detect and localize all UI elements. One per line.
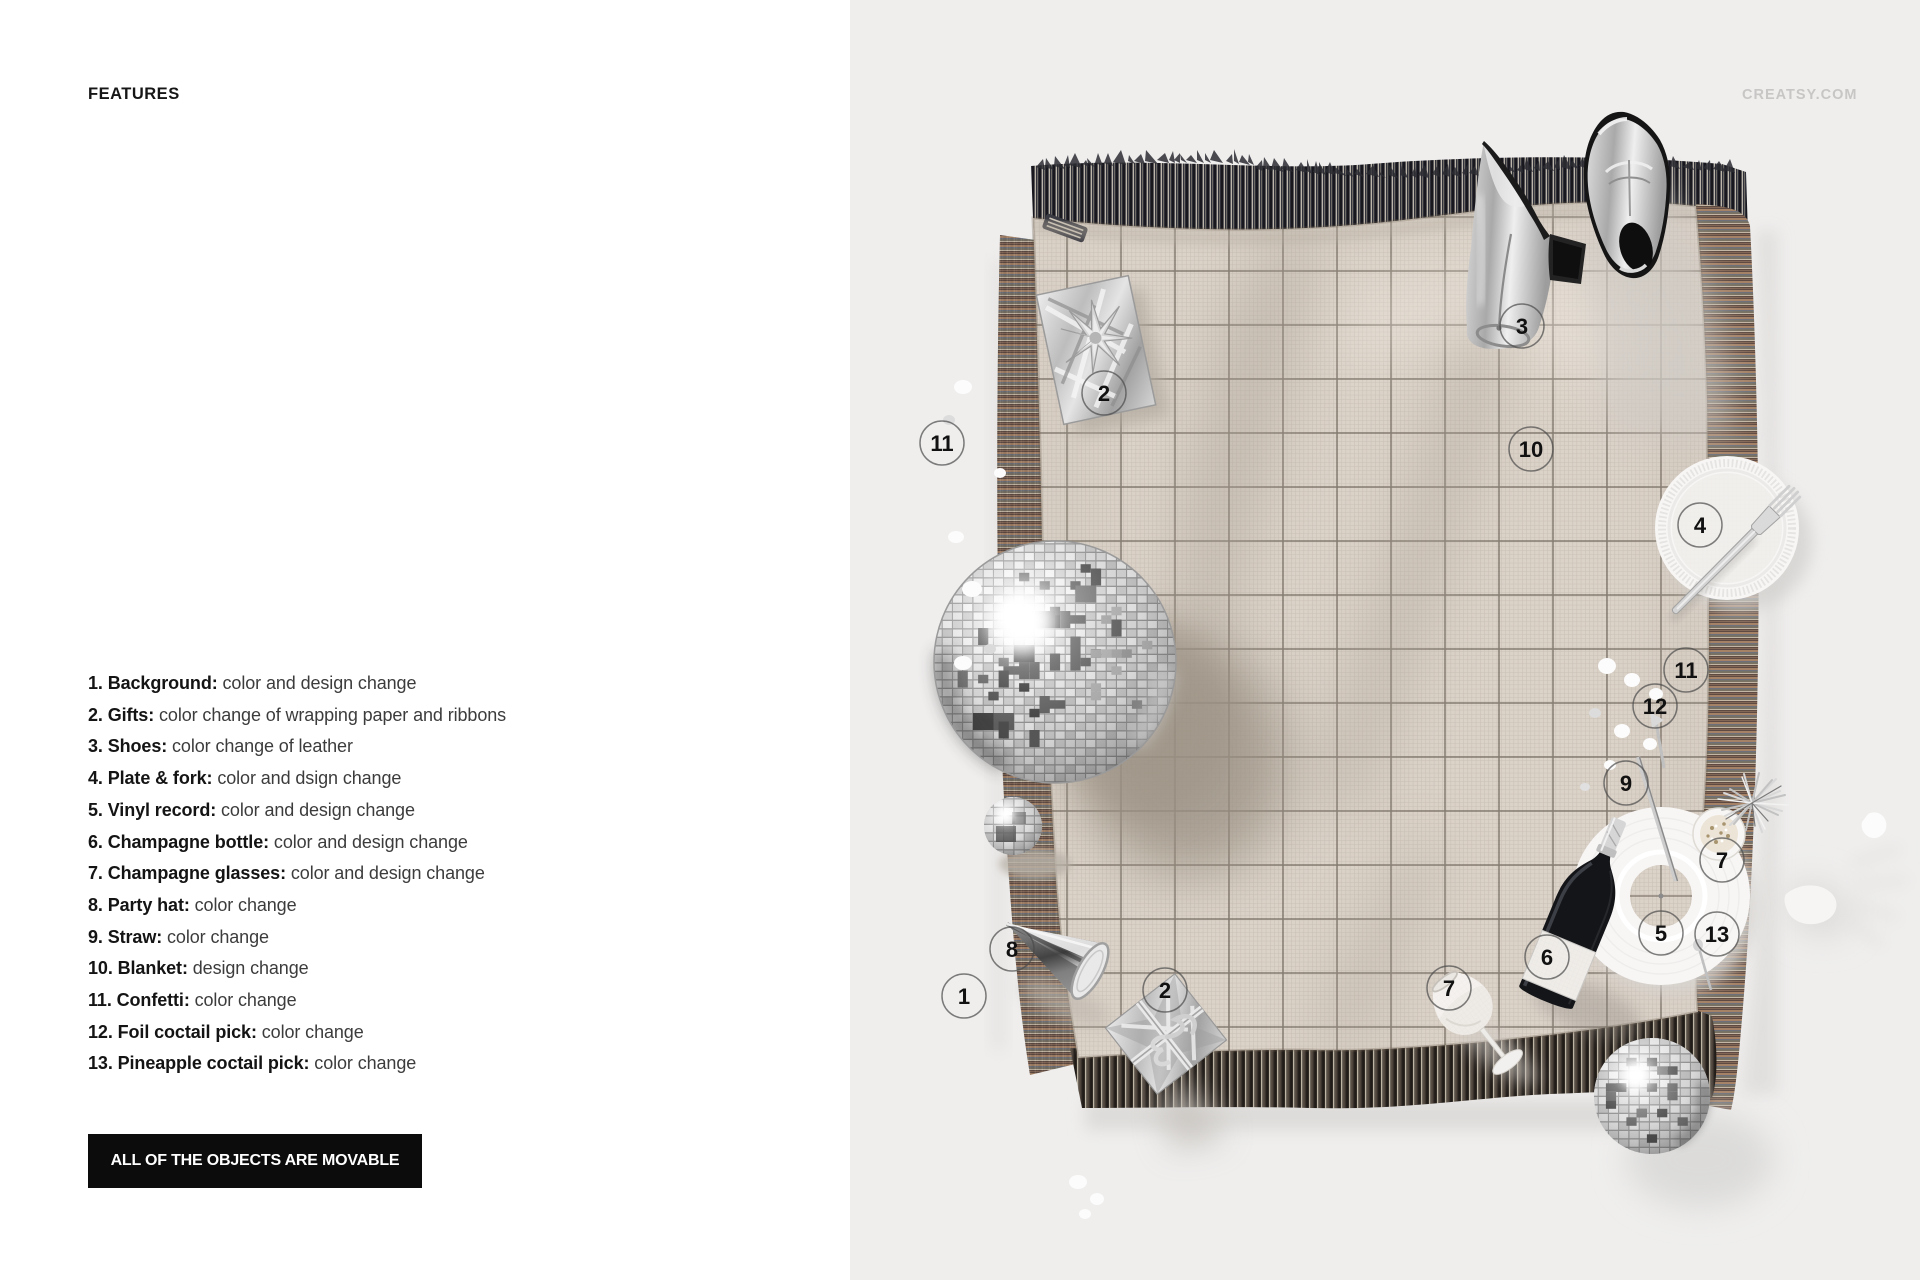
svg-text:12: 12 xyxy=(1643,694,1667,719)
svg-text:1: 1 xyxy=(958,984,970,1009)
svg-text:4: 4 xyxy=(1694,513,1707,538)
svg-text:8: 8 xyxy=(1006,937,1018,962)
svg-text:6: 6 xyxy=(1541,945,1553,970)
svg-text:9: 9 xyxy=(1620,771,1632,796)
svg-text:7: 7 xyxy=(1716,848,1728,873)
svg-text:2: 2 xyxy=(1098,381,1110,406)
svg-text:11: 11 xyxy=(1674,658,1697,683)
svg-text:11: 11 xyxy=(930,431,953,456)
svg-text:13: 13 xyxy=(1705,922,1729,947)
svg-text:10: 10 xyxy=(1519,437,1543,462)
svg-text:CREATSY.COM: CREATSY.COM xyxy=(1742,87,1857,103)
svg-text:7: 7 xyxy=(1443,976,1455,1001)
svg-text:2: 2 xyxy=(1159,978,1171,1003)
svg-text:3: 3 xyxy=(1516,314,1528,339)
svg-text:5: 5 xyxy=(1655,921,1667,946)
